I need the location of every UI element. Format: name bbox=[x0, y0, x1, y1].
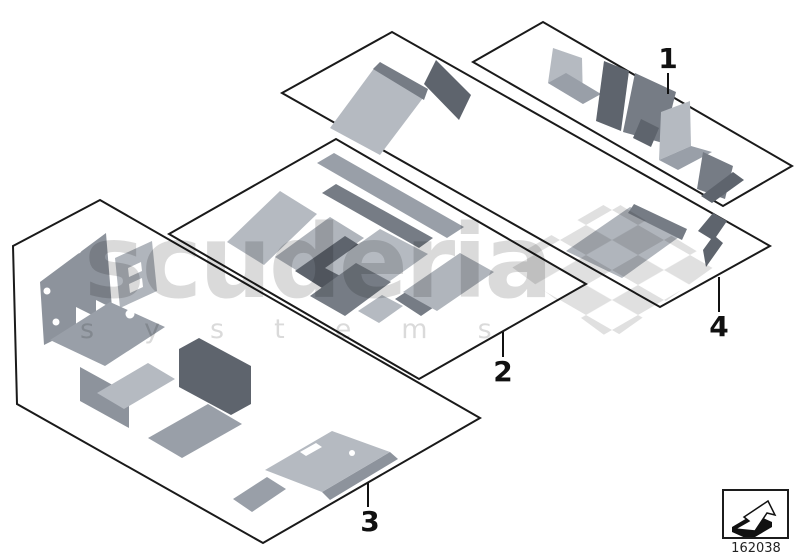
callout-3-label[interactable]: 3 bbox=[355, 508, 385, 536]
callout-1-label[interactable]: 1 bbox=[653, 45, 683, 73]
mount-hole bbox=[75, 247, 82, 254]
callout-4-label[interactable]: 4 bbox=[704, 313, 734, 341]
direction-arrow-icon bbox=[724, 491, 787, 537]
callout-2-label[interactable]: 2 bbox=[488, 358, 518, 386]
mount-hole bbox=[53, 319, 60, 326]
mount-hole bbox=[126, 310, 135, 319]
diagram-part-number: 162038 bbox=[716, 541, 796, 556]
parts-diagram-page: scuderia systems 1 2 3 4 162038 bbox=[0, 0, 800, 560]
mount-hole bbox=[44, 288, 51, 295]
mount-hole bbox=[349, 450, 355, 456]
direction-indicator-box bbox=[722, 489, 789, 539]
insulation-parts-diagram bbox=[0, 0, 800, 560]
mount-hole bbox=[49, 259, 56, 266]
